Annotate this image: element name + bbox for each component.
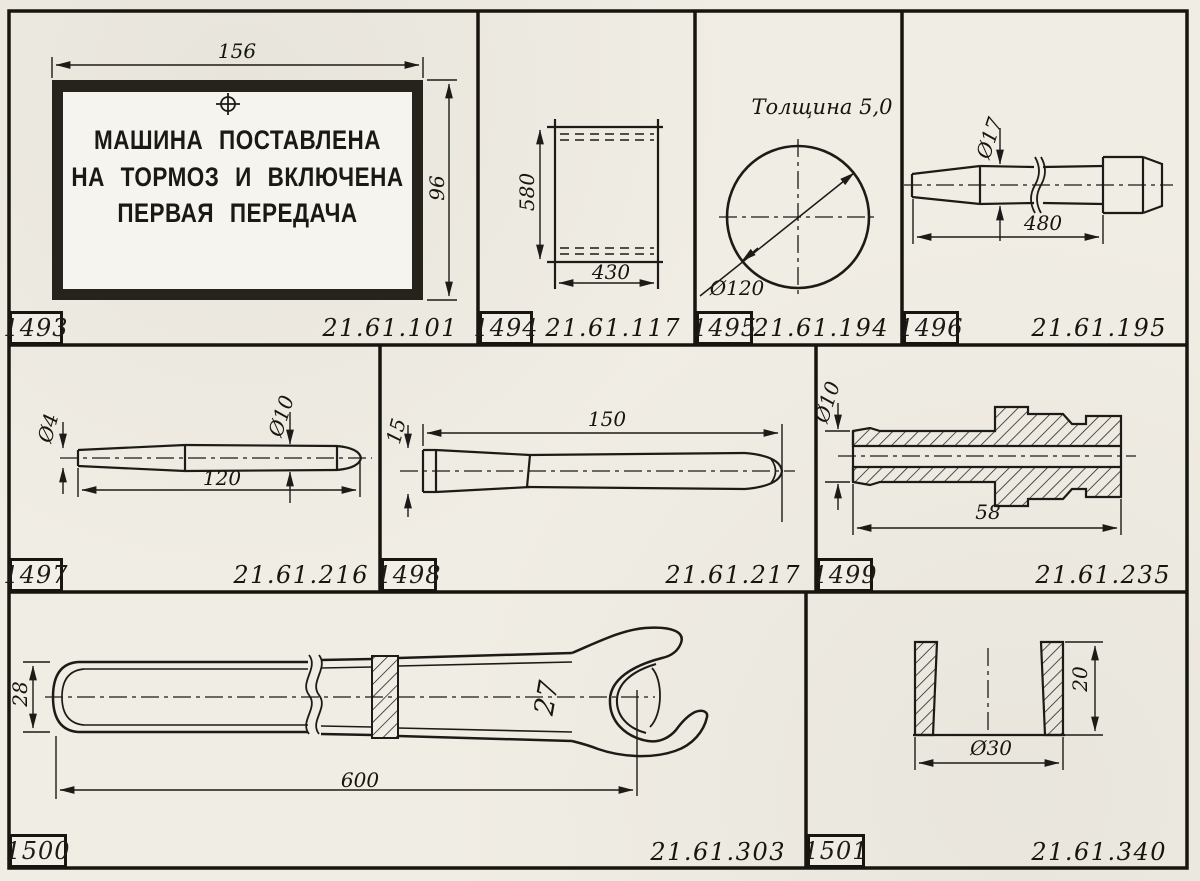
- panel-id-label: 1496: [898, 314, 963, 342]
- dim-label-156: 156: [218, 39, 256, 63]
- part-code-1497: 21.61.216: [233, 561, 369, 589]
- panel-id-1494: 1494: [479, 311, 533, 345]
- dim-label-d120: Ø120: [710, 276, 765, 300]
- panel-id-label: 1500: [5, 837, 70, 865]
- part-code-1501: 21.61.340: [1031, 838, 1167, 866]
- panel-id-1498: 1498: [381, 558, 437, 592]
- dim-480: [913, 199, 1103, 244]
- dim-label-96: 96: [425, 175, 449, 200]
- panel-id-1496: 1496: [903, 311, 959, 345]
- part-code-1495: 21.61.194: [753, 314, 889, 342]
- left-wall-section: [915, 642, 937, 735]
- dim-label-600: 600: [341, 768, 379, 792]
- plate-line-1: МАШИНА ПОСТАВЛЕНА: [94, 128, 381, 155]
- plate-line-2: НА ТОРМОЗ И ВКЛЮЧЕНА: [71, 164, 403, 191]
- right-wall-section: [1041, 642, 1063, 735]
- dim-150: [423, 424, 782, 522]
- warning-plate-text: МАШИНА ПОСТАВЛЕНА НА ТОРМОЗ И ВКЛЮЧЕНА П…: [62, 96, 413, 282]
- dim-label-27: 27: [529, 678, 565, 717]
- dim-label-150: 150: [588, 407, 626, 431]
- panel-id-1499: 1499: [817, 558, 873, 592]
- panel-id-1500: 1500: [9, 834, 67, 868]
- panel-id-1501: 1501: [807, 834, 865, 868]
- panel-id-label: 1498: [376, 561, 441, 589]
- dim-label-58: 58: [975, 500, 1000, 524]
- dim-label-430: 430: [592, 260, 630, 284]
- dim-label-580: 580: [515, 173, 539, 211]
- part-code-1496: 21.61.195: [1031, 314, 1167, 342]
- thickness-note: Толщина 5,0: [752, 95, 893, 119]
- part-code-1500: 21.61.303: [650, 838, 786, 866]
- dim-label-d30: Ø30: [970, 736, 1012, 760]
- dim-label-480: 480: [1024, 211, 1062, 235]
- panel-id-label: 1493: [3, 314, 68, 342]
- part-code-1493: 21.61.101: [322, 314, 458, 342]
- stitch-lines: [560, 134, 654, 254]
- dim-label-20: 20: [1068, 666, 1092, 691]
- panel-1495-drawing: [700, 139, 879, 296]
- panel-id-label: 1497: [3, 561, 68, 589]
- panel-id-1493: 1493: [9, 311, 63, 345]
- dim-label-120: 120: [203, 466, 241, 490]
- upper-wall-section: [853, 407, 1121, 446]
- panel-id-label: 1495: [692, 314, 757, 342]
- panel-id-label: 1499: [812, 561, 877, 589]
- drawing-sheet: МАШИНА ПОСТАВЛЕНА НА ТОРМОЗ И ВКЛЮЧЕНА П…: [0, 0, 1200, 881]
- part-code-1494: 21.61.117: [545, 314, 681, 342]
- part-code-1499: 21.61.235: [1035, 561, 1171, 589]
- handle-outline: [53, 655, 372, 735]
- panel-1498-drawing: [400, 424, 795, 522]
- panel-id-label: 1501: [803, 837, 868, 865]
- break-line: [306, 655, 312, 734]
- plate-line-3: ПЕРВАЯ ПЕРЕДАЧА: [117, 201, 357, 228]
- panel-id-label: 1494: [473, 314, 538, 342]
- panel-id-1497: 1497: [9, 558, 63, 592]
- dim-label-28: 28: [8, 681, 32, 706]
- part-code-1498: 21.61.217: [665, 561, 801, 589]
- panel-id-1495: 1495: [696, 311, 753, 345]
